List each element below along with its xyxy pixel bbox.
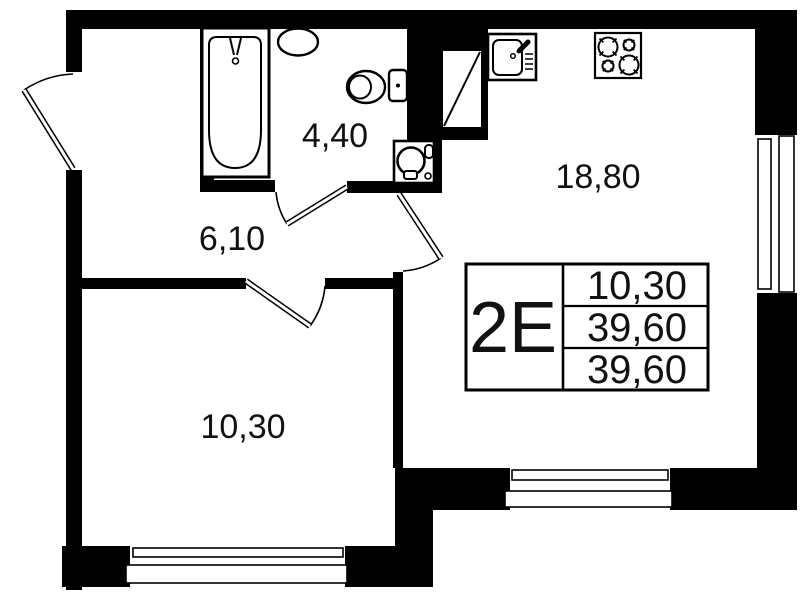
toilet-icon — [347, 70, 407, 103]
bedroom-door — [246, 281, 325, 326]
wall-bedroom-bottom-right — [345, 546, 433, 587]
bedroom-area-label: 10,30 — [200, 408, 285, 446]
floor-plan: 4,40 6,10 18,80 10,30 2Е 10,30 39,60 39,… — [0, 0, 807, 600]
wall-bathroom-bottom-left — [200, 180, 275, 192]
wall-top — [66, 10, 797, 29]
washing-machine-icon — [394, 141, 434, 183]
living-room-door-swing-arc — [403, 258, 441, 271]
hallway-area-label: 6,10 — [199, 220, 265, 258]
entry-door-swing-arc — [24, 74, 73, 90]
bathroom-door — [276, 187, 347, 224]
living-room-door — [399, 194, 441, 271]
wall-left-main — [66, 170, 82, 590]
wall-left-top — [66, 10, 82, 72]
window-right — [758, 136, 794, 292]
window-living-bottom — [505, 470, 672, 507]
kitchen-living-area-label: 18,80 — [555, 158, 640, 196]
stove-icon — [595, 33, 641, 78]
unit-table-row-1: 10,30 — [587, 264, 687, 308]
kitchen-sink-icon — [488, 34, 536, 80]
bedroom-door-swing-arc — [310, 286, 325, 326]
unit-table-row-3: 39,60 — [587, 348, 687, 392]
unit-table-row-2: 39,60 — [587, 306, 687, 350]
unit-info-table: 2Е 10,30 39,60 39,60 — [466, 264, 708, 392]
bathtub-icon — [202, 28, 269, 177]
wall-living-bottom-right — [670, 468, 797, 510]
window-bedroom-bottom — [126, 548, 347, 583]
wall-bedroom-top-left — [66, 278, 246, 289]
bathroom-area-label: 4,40 — [302, 117, 368, 155]
wall-hall-living-divider — [393, 272, 403, 468]
wall-top-right-corner — [755, 10, 797, 135]
ventilation-shaft-icon — [442, 50, 482, 128]
bathroom-door-swing-arc — [276, 192, 287, 224]
floor-plan-drawing: 4,40 6,10 18,80 10,30 2Е 10,30 39,60 39,… — [0, 0, 807, 600]
wall-bedroom-top-right — [325, 278, 403, 289]
wall-shaft-band — [407, 128, 488, 140]
entry-door — [24, 74, 73, 169]
unit-type-label: 2Е — [469, 288, 557, 368]
wall-living-bottom-left — [395, 468, 510, 510]
